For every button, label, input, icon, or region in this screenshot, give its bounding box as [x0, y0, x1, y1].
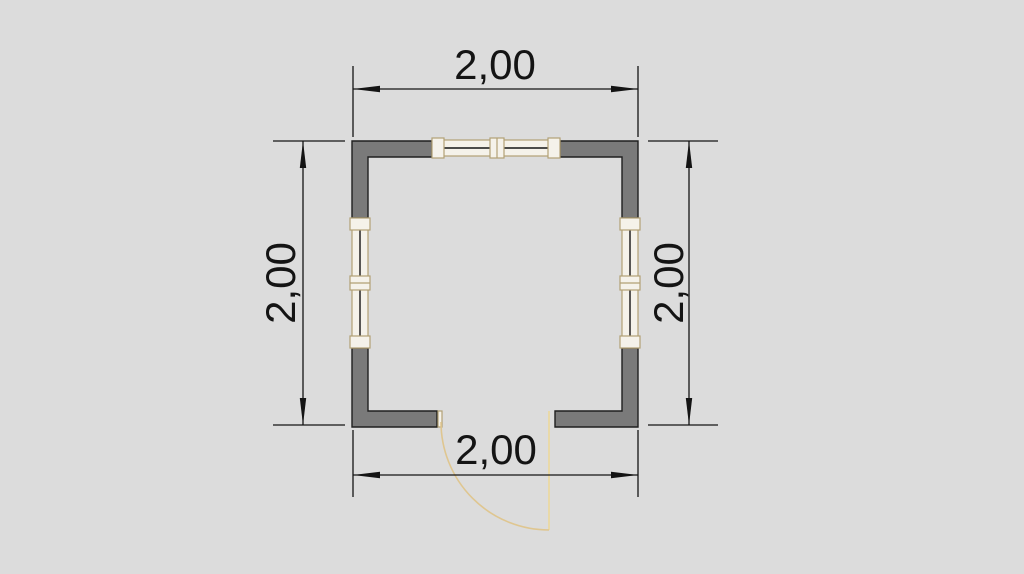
dimension-top-label: 2,00 — [454, 41, 536, 88]
floor-plan-drawing: 2,00 2,00 2,00 2,00 — [0, 0, 1024, 574]
dimension-bottom-arrow-right — [611, 472, 638, 478]
dimension-right-arrow-top — [686, 141, 692, 168]
dimension-bottom-arrow-left — [353, 472, 380, 478]
dimension-top-arrow-right — [611, 86, 638, 92]
dimension-right: 2,00 — [645, 141, 718, 425]
dimension-right-label: 2,00 — [645, 242, 692, 324]
dimension-left-arrow-top — [300, 141, 306, 168]
dimension-top: 2,00 — [353, 41, 638, 137]
drawing-canvas: 2,00 2,00 2,00 2,00 — [0, 0, 1024, 574]
window-left-mullion-top — [350, 218, 370, 230]
window-left-mullion-bottom — [350, 336, 370, 348]
wall-top-left — [352, 141, 432, 218]
wall-bottom-right — [555, 348, 638, 427]
wall-top-right — [560, 141, 638, 218]
dimension-bottom: 2,00 — [353, 426, 638, 497]
window-top — [432, 138, 560, 158]
wall-bottom-left — [352, 348, 437, 427]
dimension-bottom-label: 2,00 — [455, 426, 537, 473]
dimension-left-label: 2,00 — [257, 242, 304, 324]
window-top-mullion-right — [548, 138, 560, 158]
dimension-top-arrow-left — [353, 86, 380, 92]
window-left — [350, 218, 370, 348]
window-right-mullion-top — [620, 218, 640, 230]
window-right-mullion-bottom — [620, 336, 640, 348]
window-right — [620, 218, 640, 348]
dimension-right-arrow-bottom — [686, 398, 692, 425]
dimension-left-arrow-bottom — [300, 398, 306, 425]
walls — [352, 141, 638, 427]
window-top-mullion-left — [432, 138, 444, 158]
dimension-left: 2,00 — [257, 141, 345, 425]
